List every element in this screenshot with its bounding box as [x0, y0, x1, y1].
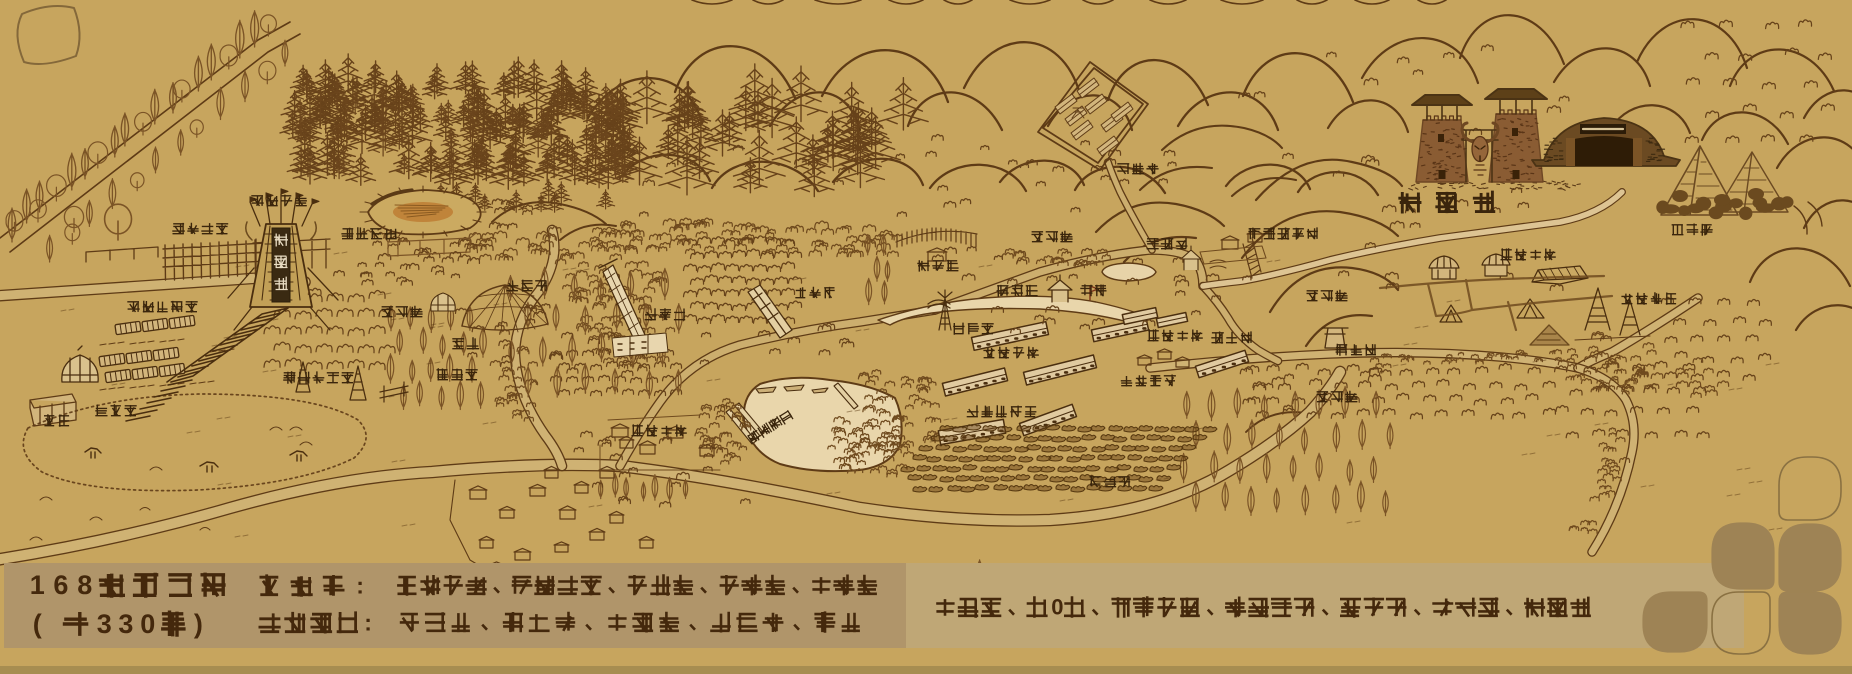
svg-text:3: 3 — [97, 609, 112, 639]
svg-text::: : — [356, 573, 364, 599]
svg-text:): ) — [194, 609, 203, 639]
svg-text:3: 3 — [118, 609, 133, 639]
svg-text:8: 8 — [77, 570, 92, 600]
svg-text:6: 6 — [53, 570, 68, 600]
svg-text::: : — [364, 610, 372, 636]
svg-text:0: 0 — [140, 609, 155, 639]
svg-text:(: ( — [33, 609, 42, 639]
svg-text:1: 1 — [30, 570, 45, 600]
svg-text:0: 0 — [1051, 595, 1063, 620]
